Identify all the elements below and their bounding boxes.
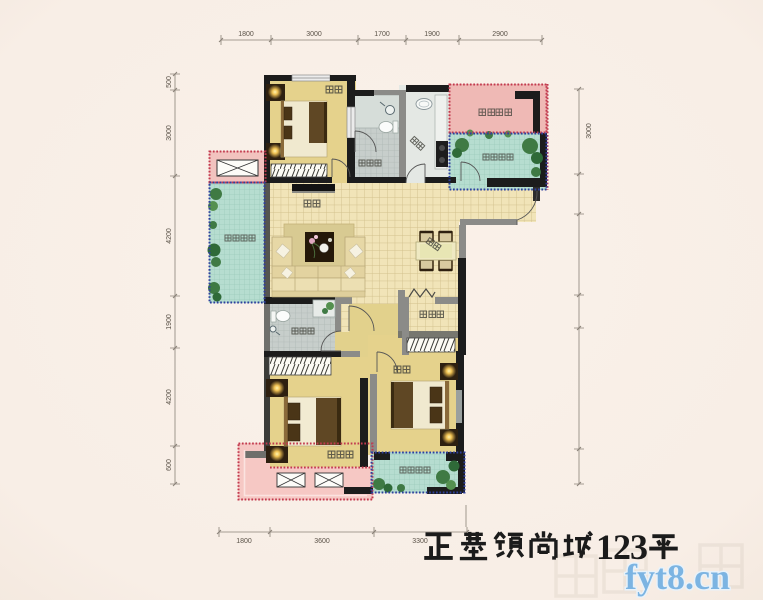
svg-text:1800: 1800 xyxy=(236,538,252,545)
svg-text:3300: 3300 xyxy=(412,538,428,545)
svg-text:500: 500 xyxy=(166,76,173,88)
svg-text:600: 600 xyxy=(166,459,173,471)
svg-text:4200: 4200 xyxy=(166,228,173,244)
svg-text:2900: 2900 xyxy=(492,31,508,38)
svg-text:3600: 3600 xyxy=(314,538,330,545)
svg-text:3000: 3000 xyxy=(166,125,173,141)
svg-text:1800: 1800 xyxy=(238,31,254,38)
svg-text:4200: 4200 xyxy=(166,389,173,405)
svg-text:3000: 3000 xyxy=(306,31,322,38)
svg-text:1700: 1700 xyxy=(374,31,390,38)
svg-text:1900: 1900 xyxy=(424,31,440,38)
svg-text:fyt8.cn: fyt8.cn xyxy=(625,557,730,597)
svg-text:1900: 1900 xyxy=(166,314,173,330)
svg-text:3000: 3000 xyxy=(586,123,593,139)
